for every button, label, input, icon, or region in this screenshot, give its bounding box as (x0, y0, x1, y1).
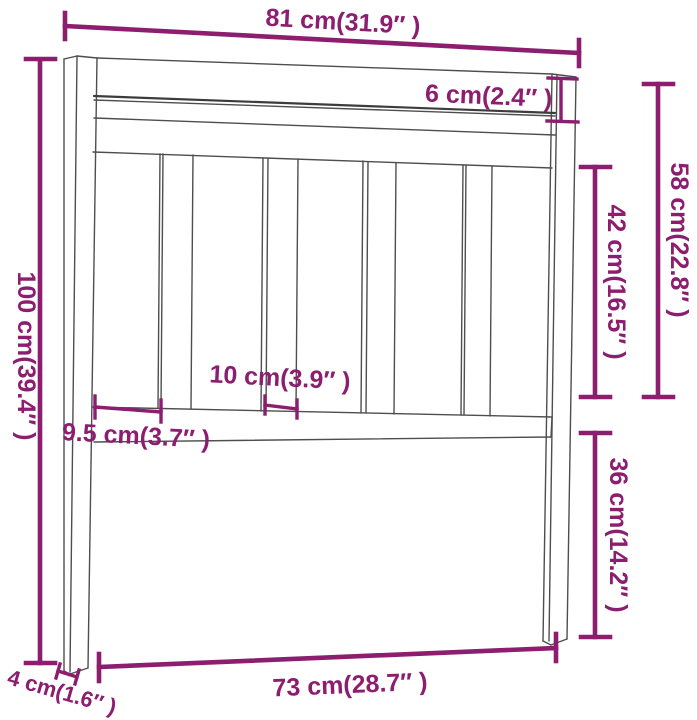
dim-label-6cm: 6 cm(2.4″ ) (425, 79, 553, 113)
dim-label-73cm: 73 cm(28.7″ ) (272, 668, 428, 703)
dim-label-42cm: 42 cm(16.5″ ) (602, 204, 630, 359)
dimension-leg-thickness: 4 cm(1.6″ ) (5, 664, 120, 719)
dim-label-81cm: 81 cm(31.9″ ) (265, 4, 421, 41)
dimension-slat-section: 42 cm(16.5″ ) (581, 167, 630, 397)
headboard-line-art (64, 56, 576, 674)
dimension-slat-width: 9.5 cm(3.7″ ) (61, 396, 210, 454)
dimension-top-width: 81 cm(31.9″ ) (65, 4, 579, 66)
product-dimension-image: 81 cm(31.9″ ) 100 cm(39.4″ ) 6 cm(2.4″ )… (0, 0, 697, 720)
dim-label-36cm: 36 cm(14.2″ ) (604, 457, 632, 612)
dim-label-58cm: 58 cm(22.8″ ) (665, 162, 693, 317)
left-post (64, 56, 97, 674)
dimension-lower-right: 36 cm(14.2″ ) (581, 433, 632, 637)
dimension-upper-right: 58 cm(22.8″ ) (644, 84, 693, 397)
dim-label-10cm: 10 cm(3.9″ ) (209, 360, 351, 395)
dimension-total-height: 100 cm(39.4″ ) (12, 59, 55, 663)
dim-label-9-5cm: 9.5 cm(3.7″ ) (61, 418, 210, 454)
headboard-diagram-svg: 81 cm(31.9″ ) 100 cm(39.4″ ) 6 cm(2.4″ )… (0, 0, 697, 720)
dimension-bottom-width: 73 cm(28.7″ ) (99, 634, 556, 702)
right-post (543, 74, 576, 645)
dim-label-100cm: 100 cm(39.4″ ) (12, 271, 40, 440)
